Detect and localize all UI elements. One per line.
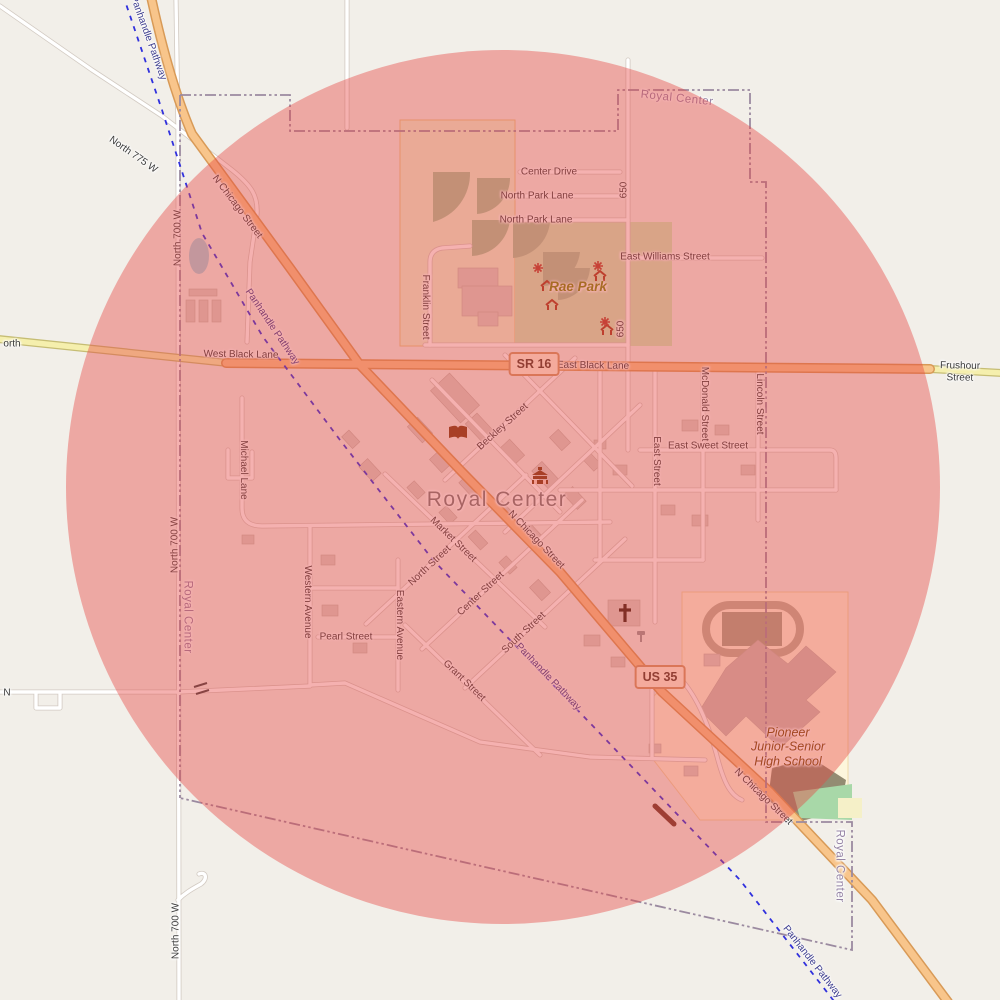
map-label-rae-park: Rae Park bbox=[549, 279, 607, 295]
route-badge-sr16: SR 16 bbox=[509, 352, 560, 376]
map-label-franklin-street: Franklin Street bbox=[419, 274, 431, 339]
map-label-center-drive: Center Drive bbox=[521, 166, 577, 178]
map-label-frushour-street: Frushour Street bbox=[940, 360, 980, 384]
map-label-panhandle-pathway: Panhandle Pathway bbox=[127, 0, 168, 82]
map-label-n: N bbox=[3, 687, 10, 699]
map-label-north-700-w: North 700 W bbox=[172, 210, 184, 266]
map-label-north-700-w: North 700 W bbox=[169, 517, 181, 573]
map-label-royal-center: Royal Center bbox=[640, 89, 714, 110]
map-label-east-black-lane: East Black Lane bbox=[557, 360, 629, 373]
map-label-lincoln-street: Lincoln Street bbox=[753, 373, 765, 434]
map-label-center-street: Center Street bbox=[455, 570, 506, 619]
map-label-eastern-avenue: Eastern Avenue bbox=[393, 590, 405, 660]
map-label-royal-center: Royal Center bbox=[180, 580, 193, 653]
map-label-north-park-lane: North Park Lane bbox=[501, 190, 574, 202]
map-label-beckley-street: Beckley Street bbox=[475, 401, 531, 453]
map-label-north-775-w: North 775 W bbox=[107, 134, 160, 176]
map-label-western-avenue: Western Avenue bbox=[301, 565, 313, 638]
map-label-royal-center: Royal Center bbox=[832, 829, 845, 902]
map-label-east-williams-street: East Williams Street bbox=[620, 251, 709, 263]
map-label-east-street: East Street bbox=[650, 436, 662, 485]
route-badge-us35: US 35 bbox=[635, 665, 686, 689]
map-label-pearl-street: Pearl Street bbox=[320, 631, 373, 643]
map-label-michael-lane: Michael Lane bbox=[237, 440, 249, 499]
map-label-n-chicago-street: N Chicago Street bbox=[209, 173, 264, 241]
map-label-pioneer-junior-senior-high-school: Pioneer Junior-Senior High School bbox=[751, 725, 825, 768]
map-label-650: 650 bbox=[615, 321, 627, 338]
map-label-north-park-lane: North Park Lane bbox=[500, 214, 573, 226]
map-label-panhandle-pathway: Panhandle Pathway bbox=[513, 641, 583, 713]
map-label-orth: orth bbox=[3, 338, 20, 350]
map-canvas[interactable]: orthNorth 775 WPanhandle PathwayN Chicag… bbox=[0, 0, 1000, 1000]
map-label-n-chicago-street: N Chicago Street bbox=[732, 766, 795, 827]
map-labels-layer: orthNorth 775 WPanhandle PathwayN Chicag… bbox=[0, 0, 1000, 1000]
map-label-grant-street: Grant Street bbox=[440, 658, 487, 704]
map-label-n-chicago-street: N Chicago Street bbox=[505, 509, 566, 572]
map-label-royal-center: Royal Center bbox=[427, 488, 568, 512]
map-label-mcdonald-street: McDonald Street bbox=[698, 367, 710, 441]
map-label-650: 650 bbox=[618, 182, 630, 199]
map-label-west-black-lane: West Black Lane bbox=[203, 349, 278, 362]
map-label-panhandle-pathway: Panhandle Pathway bbox=[780, 923, 844, 1000]
map-label-east-sweet-street: East Sweet Street bbox=[668, 440, 748, 452]
map-label-north-700-w: North 700 W bbox=[170, 903, 182, 959]
map-label-north-street: North Street bbox=[406, 543, 453, 588]
